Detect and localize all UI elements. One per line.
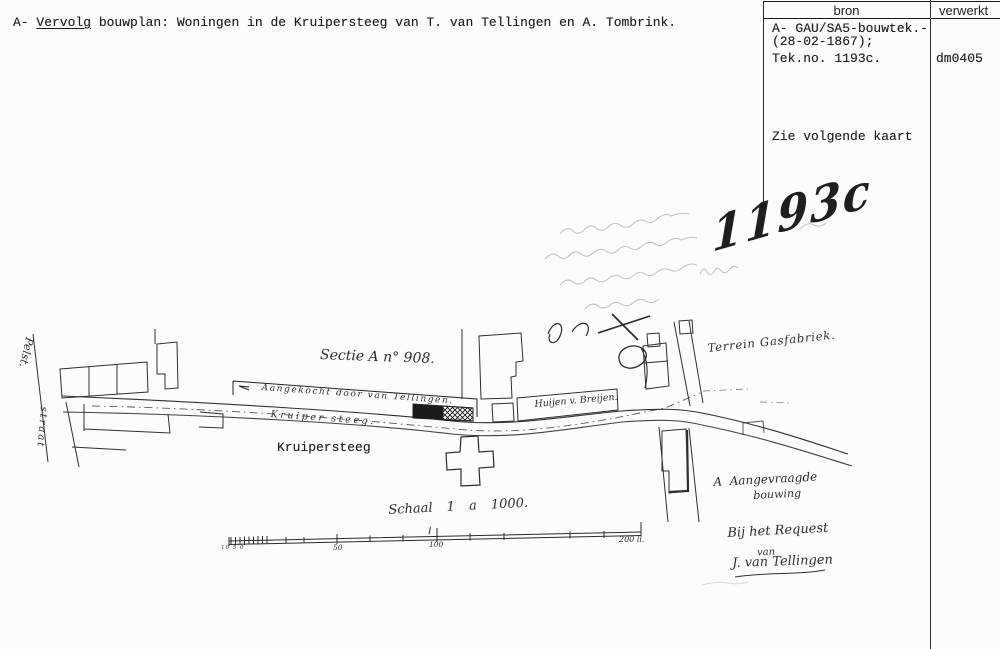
- signature-underline: [735, 570, 825, 577]
- aangevraagde-bouwing-outline: [669, 430, 688, 492]
- scale-label-50: 50: [333, 543, 343, 552]
- kruipersteeg-street: [62, 389, 852, 466]
- label-bouwing: bouwing: [753, 486, 801, 501]
- signature-flourish: [548, 314, 650, 388]
- cross-shaped-building: [446, 436, 494, 486]
- scale-label-200: 200 ll.: [619, 535, 644, 544]
- label-kruipersteeg-typed: Kruipersteeg: [277, 440, 371, 455]
- left-street-and-buildings: [33, 329, 223, 467]
- site-plan-drawing: [0, 0, 1000, 649]
- scale-label-minor: 10 5 0: [221, 545, 245, 551]
- new-building-hatched-light: [443, 406, 473, 421]
- new-building-hatched-dark: [413, 404, 443, 420]
- scale-label-100: 100: [429, 540, 443, 549]
- scanned-bouwplan-document: A- Vervolg bouwplan: Woningen in de Krui…: [0, 0, 1000, 649]
